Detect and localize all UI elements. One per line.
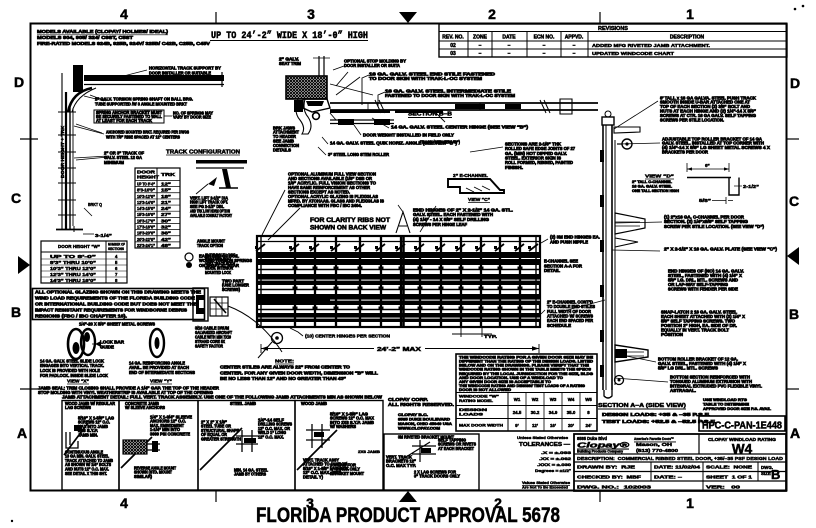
svg-text:SHOWN ON BACK VIEW: SHOWN ON BACK VIEW (310, 224, 387, 231)
svg-text:CHECKED BY: MBF: CHECKED BY: MBF (577, 475, 641, 480)
svg-text:APPROVED DOOR SIZE P.S. AVAIL: APPROVED DOOR SIZE P.S. AVAIL (703, 406, 772, 411)
svg-text:W4: W4 (568, 397, 575, 402)
svg-text:1: 1 (686, 495, 694, 511)
svg-text:15’3-16’0”: 15’3-16’0” (137, 212, 155, 217)
svg-text:LOADS: LOADS (459, 413, 484, 417)
svg-text:12’: 12’ (532, 423, 538, 428)
svg-text:DATE: –: DATE: – (654, 475, 683, 480)
svg-text:2” X 2-1/2” X 16 GA. GALV. PLA: 2” X 2-1/2” X 16 GA. GALV. PLATE (SEE VI… (664, 246, 778, 251)
svg-text:8’3” THRU 10’0”: 8’3” THRU 10’0” (50, 260, 96, 265)
svg-text:UP TO 8’-0”: UP TO 8’-0” (50, 254, 96, 259)
svg-text:AT LEAST FOR EACH TRACK: AT LEAST FOR EACH TRACK (96, 118, 152, 123)
svg-text:DATE: DATE (502, 35, 516, 41)
svg-text:FOR CLARITY RIBS NOT: FOR CLARITY RIBS NOT (310, 217, 390, 224)
svg-text:16’3-17’0”: 16’3-17’0” (137, 218, 155, 223)
svg-text:VIEW “C”: VIEW “C” (468, 197, 490, 202)
svg-text:ALL OPTIONAL GLAZING SHOWN ON: ALL OPTIONAL GLAZING SHOWN ON THIS DRAWI… (35, 290, 201, 295)
svg-text:IMPACT RESISTANT REQUIREMENTS: IMPACT RESISTANT REQUIREMENTS FOR WINDBO… (35, 307, 187, 312)
svg-text:SCREWS PER STILE LOCATION.: SCREWS PER STILE LOCATION. (660, 118, 724, 123)
svg-text:FOR PADLOCK. INSIDE SLIDE LOCK: FOR PADLOCK. INSIDE SLIDE LOCK (40, 373, 108, 378)
svg-text:Unless Stated Otherwise: Unless Stated Otherwise (517, 435, 569, 440)
svg-text:ADDED MFG RIVETED JAMB ATTACHM: ADDED MFG RIVETED JAMB ATTACHMENT. (592, 43, 710, 49)
svg-text:WINDCODE “W”: WINDCODE “W” (459, 395, 499, 399)
svg-text:WWW.CLOPAY.COM: WWW.CLOPAY.COM (398, 425, 440, 430)
svg-text:DESCRIPTION: COMMERCIAL RIBBE: DESCRIPTION: COMMERCIAL RIBBED STEEL DOO… (577, 456, 784, 462)
svg-text:D: D (14, 74, 24, 90)
svg-text:TRACK (SEE VIEW “B”): TRACK (SEE VIEW “B”) (420, 139, 461, 144)
svg-text:10’3” THRU 12’0”: 10’3” THRU 12’0” (50, 266, 96, 271)
svg-text:TUBE SUPPORTED /W 3 ANGLE MOUN: TUBE SUPPORTED /W 3 ANGLE MOUNTED BRKT (95, 101, 187, 106)
svg-text:.XXX = ±.030: .XXX = ±.030 (537, 462, 572, 467)
svg-text:FIRE-RATED MODELS 924B, 925B,: FIRE-RATED MODELS 924B, 925B, 924V/ 325B… (37, 41, 211, 47)
svg-text:12’3” THRU 14’0”: 12’3” THRU 14’0” (50, 272, 96, 277)
svg-text:ON SHAFT AT REAR: ON SHAFT AT REAR (199, 263, 239, 268)
svg-text:SECTION A–A (SIDE VIEW): SECTION A–A (SIDE VIEW) (598, 403, 686, 409)
svg-text:SCALE: NONE: SCALE: NONE (706, 465, 752, 470)
svg-text:MODELS AVAILABLE (CLOPAY/ HOLM: MODELS AVAILABLE (CLOPAY/ HOLMES/ IDEAL) (37, 29, 168, 35)
svg-text:Clopay®: Clopay® (577, 441, 630, 450)
svg-text:JAMB MIN.: JAMB MIN. (78, 433, 98, 438)
svg-text:SECTION B–B: SECTION B–B (408, 112, 452, 118)
svg-text:21”: 21” (161, 200, 171, 205)
svg-text:SCREWS WITH FENDER PER SIDE: SCREWS WITH FENDER PER SIDE (668, 286, 738, 291)
svg-text:Mason, OH: Mason, OH (636, 442, 673, 447)
svg-text:W/ SLEEVE ANCHORS: W/ SLEEVE ANCHORS (125, 405, 165, 410)
svg-text:REGIONS (FBC / IBC CHAPTER 16): REGIONS (FBC / IBC CHAPTER 16). (35, 313, 127, 318)
svg-text:12’3-14’0”: 12’3-14’0” (137, 200, 155, 205)
svg-text:MAX DOOR WIDTH: MAX DOOR WIDTH (459, 424, 503, 428)
svg-text:ECN NO.: ECN NO. (534, 35, 555, 41)
svg-text:BE NO LESS THAN 12” AND NO GRE: BE NO LESS THAN 12” AND NO GREATER THAN … (220, 376, 346, 381)
svg-text:DOOR HEIGHT “W”: DOOR HEIGHT “W” (58, 244, 100, 249)
svg-text:VIEW “Y”: VIEW “Y” (150, 379, 172, 384)
svg-text:–: – (479, 43, 482, 49)
svg-text:DESCRIPTION: DESCRIPTION (670, 35, 705, 41)
svg-text:C: C (789, 193, 799, 209)
svg-text:MINIMUM: MINIMUM (104, 160, 125, 165)
svg-text:35.0: 35.0 (567, 410, 576, 415)
svg-text:A: A (17, 425, 27, 441)
svg-text:20’: 20’ (568, 423, 574, 428)
svg-text:SEAT TRIM: SEAT TRIM (279, 61, 301, 66)
svg-text:1/4”-20 X 5/8” SHEET METAL SCR: 1/4”-20 X 5/8” SHEET METAL SCREWS (79, 322, 155, 327)
svg-text:OR INTERNATIONAL BUILDING CODE: OR INTERNATIONAL BUILDING CODE BUT DOES … (35, 302, 197, 307)
svg-text:36”: 36” (161, 231, 171, 236)
svg-text:.X = ±.093: .X = ±.093 (541, 450, 572, 455)
svg-text:FASTENED TO DOOR SKIN WITH TRA: FASTENED TO DOOR SKIN WITH TRAK-L-OC SYS… (385, 93, 516, 98)
svg-text:REV. NO.: REV. NO. (442, 35, 464, 41)
svg-text:14’3” THRU 16’0”: 14’3” THRU 16’0” (50, 278, 96, 283)
svg-text:O.C. MAX TYP.: O.C. MAX TYP. (386, 463, 416, 468)
svg-text:BRACKETS PER DOOR: BRACKETS PER DOOR (662, 150, 708, 155)
svg-text:VIEW “X”: VIEW “X” (67, 379, 89, 384)
svg-text:.XX = ±.062: .XX = ±.062 (539, 456, 572, 461)
svg-text:AND PUSH NIPPLE: AND PUSH NIPPLE (550, 239, 588, 244)
svg-text:24’-2” MAX: 24’-2” MAX (377, 347, 422, 353)
svg-text:1: 1 (686, 6, 694, 22)
svg-text:–: – (573, 43, 576, 49)
svg-text:32”: 32” (161, 225, 171, 230)
svg-text:3: 3 (307, 6, 315, 22)
svg-text:VER: 00: VER: 00 (706, 485, 741, 490)
svg-text:ASTRAGAL.: ASTRAGAL. (670, 388, 696, 393)
svg-text:HEIGHT: HEIGHT (137, 175, 160, 180)
svg-text:WIND LOAD REQUIREMENTS OF THE: WIND LOAD REQUIREMENTS OF THE FLORIDA BU… (35, 296, 195, 301)
svg-text:C: C (11, 190, 21, 206)
svg-text:–: – (543, 43, 546, 49)
svg-text:SECTIONS: SECTIONS (108, 246, 124, 251)
svg-text:ONE TALL SECTION HIGH: ONE TALL SECTION HIGH (632, 188, 679, 193)
svg-text:17’3-18’0”: 17’3-18’0” (137, 225, 155, 230)
svg-text:TYP.: TYP. (484, 334, 497, 339)
svg-text:24’: 24’ (585, 423, 591, 428)
svg-text:Building Products Company: Building Products Company (577, 450, 624, 454)
svg-text:BRACKET MOUNT: BRACKET MOUNT (330, 471, 364, 476)
svg-text:12” O.C. MAX.: 12” O.C. MAX. (258, 435, 284, 440)
svg-text:SEE DETAIL X THIS SHT.: SEE DETAIL X THIS SHT. (65, 471, 107, 476)
svg-text:10’3-12’0”: 10’3-12’0” (137, 194, 155, 199)
svg-text:DOOR HEIGHT + TRK: DOOR HEIGHT + TRK (60, 125, 65, 178)
svg-text:3” STEEL LONG STEM ROLLER: 3” STEEL LONG STEM ROLLER (328, 152, 389, 157)
svg-text:3” TRACK DOORS ONLY: 3” TRACK DOORS ONLY (414, 474, 460, 479)
svg-text:AT EACH BRACKET: AT EACH BRACKET (438, 446, 474, 451)
svg-text:DETAIL: DETAIL (544, 268, 560, 273)
svg-text:2: 2 (488, 6, 496, 22)
svg-text:FINISH.: FINISH. (505, 165, 523, 170)
svg-text:CLOPAY CORP.: CLOPAY CORP. (388, 397, 428, 403)
svg-text:DATE: 11/02/04: DATE: 11/02/04 (654, 465, 701, 470)
svg-text:TRACK OPTION: TRACK OPTION (197, 243, 223, 248)
svg-text:GREATER STRENGTH: GREATER STRENGTH (201, 437, 241, 442)
svg-text:W2: W2 (532, 397, 539, 402)
svg-text:DOOR INSTALLER OR SUITA: DOOR INSTALLER OR SUITA (344, 63, 400, 68)
svg-text:27”: 27” (161, 212, 171, 217)
svg-text:22’3-24’1”: 22’3-24’1” (137, 243, 155, 248)
svg-text:SCREWS): SCREWS) (222, 287, 241, 292)
svg-text:(10) CENTER HINGES PER SECTION: (10) CENTER HINGES PER SECTION (305, 334, 391, 339)
svg-text:MODELS 904, 905/ 324/ C9ST, C5: MODELS 904, 905/ 324/ C9ST, C5ST (37, 35, 133, 41)
svg-text:DWG. NO.: 102003: DWG. NO.: 102003 (577, 485, 652, 490)
svg-text:(513) 770-4800: (513) 770-4800 (636, 448, 679, 453)
svg-text:W4: W4 (732, 442, 753, 457)
svg-text:3-1/4”: 3-1/4” (95, 233, 112, 238)
svg-text:48”: 48” (161, 243, 171, 248)
svg-text:VARY BY DOOR SIZE: VARY BY DOOR SIZE (173, 115, 211, 120)
svg-text:DOOR INSTALLER OR SUITABLE: DOOR INSTALLER OR SUITABLE (149, 70, 211, 75)
svg-text:–: – (479, 51, 482, 57)
svg-text:D: D (790, 75, 800, 91)
svg-text:SCHEDULE: SCHEDULE (547, 323, 571, 328)
svg-text:AVAILABLE CONSULT FACTORY: AVAILABLE CONSULT FACTORY (190, 213, 232, 218)
svg-text:HPC-C-PAN-1E448: HPC-C-PAN-1E448 (702, 421, 782, 432)
svg-text:ZONE: ZONE (473, 35, 488, 41)
svg-text:5/8” LG DRL. MTL. SCREWS: 5/8” LG DRL. MTL. SCREWS (658, 365, 718, 370)
svg-text:2” E-CHANNEL: 2” E-CHANNEL (453, 173, 488, 178)
svg-text:DETAILS: DETAILS (273, 147, 291, 152)
svg-text:DESIGN: DESIGN (459, 408, 487, 412)
svg-text:18’3-20’0”: 18’3-20’0” (137, 231, 155, 236)
svg-text:DESIGN LOADS: +35 & –35 P.S.F.: DESIGN LOADS: +35 & –35 P.S.F. (602, 412, 710, 418)
svg-text:12”: 12” (161, 182, 171, 187)
svg-text:DOOR WEIGHT INSTALLED IN FIELD: DOOR WEIGHT INSTALLED IN FIELD ONLY (363, 132, 454, 137)
svg-text:W/ WASHERS: W/ WASHERS (330, 424, 356, 429)
svg-text:UPDATED WINDCODE CHART: UPDATED WINDCODE CHART (592, 51, 674, 57)
svg-text:STEEL JAMB: STEEL JAMB (230, 401, 256, 406)
svg-text:SAFETY FACTOR: SAFETY FACTOR (195, 344, 223, 349)
svg-text:W1: W1 (514, 397, 521, 402)
svg-text:15”: 15” (161, 188, 171, 193)
svg-text:DRAWN BY: RJE: DRAWN BY: RJE (577, 465, 635, 470)
svg-text:SCREW PER STILE LOCATION. (SEE: SCREW PER STILE LOCATION. (SEE VIEW “D”) (664, 224, 765, 229)
svg-text:24”: 24” (161, 206, 171, 211)
svg-text:18”: 18” (161, 194, 171, 199)
svg-text:02: 02 (450, 43, 456, 49)
svg-text:SIZE: SIZE (761, 471, 771, 476)
svg-text:4: 4 (120, 6, 128, 22)
svg-text:WITH 7/8” RISE SPACED AT 12” C: WITH 7/8” RISE SPACED AT 12” CENTERS (106, 134, 180, 139)
svg-text:–: – (543, 51, 546, 57)
svg-text:W5: W5 (585, 397, 592, 402)
svg-text:20’3-22’0”: 20’3-22’0” (137, 237, 155, 242)
svg-text:MOUNTED LOCK: MOUNTED LOCK (205, 270, 231, 275)
svg-text:2-1/2”: 2-1/2” (743, 184, 760, 190)
svg-text:B: B (789, 306, 799, 322)
svg-text:SCREWS PER HINGE LEAF: SCREWS PER HINGE LEAF (413, 222, 467, 227)
svg-text:A: A (790, 425, 800, 441)
svg-text:LAG SCREWS: LAG SCREWS (65, 405, 91, 410)
svg-text:–: – (508, 43, 511, 49)
svg-text:JAMB BY OTHERS: JAMB BY OTHERS (234, 472, 266, 477)
svg-text:8’3-10’0”: 8’3-10’0” (137, 188, 155, 193)
svg-text:COMPLIANCE WITH FBC / IBC 2404: COMPLIANCE WITH FBC / IBC 2404. (288, 203, 362, 208)
svg-text:–: – (573, 51, 576, 57)
svg-text:CENTER STILES ARE ALWAYS 22” F: CENTER STILES ARE ALWAYS 22” FROM CENTER… (220, 365, 351, 370)
svg-text:14 GA. GALV. STEEL CENTER HING: 14 GA. GALV. STEEL CENTER HINGE (SEE VIE… (391, 124, 529, 129)
svg-text:24.5: 24.5 (513, 410, 522, 415)
svg-text:UP TO 8’-0”: UP TO 8’-0” (137, 182, 155, 187)
svg-text:America’s Favorite Doors™: America’s Favorite Doors™ (634, 437, 674, 441)
svg-text:6”: 6” (705, 163, 710, 168)
svg-text:ALL RIGHTS RESERVED.: ALL RIGHTS RESERVED. (388, 402, 454, 408)
svg-text:SHEET 1 OF 1: SHEET 1 OF 1 (706, 475, 753, 480)
svg-text:TOLERANCES —: TOLERANCES — (519, 442, 571, 448)
svg-text:4: 4 (120, 495, 128, 511)
svg-text:END OF INTERMEDIATE SECTIONS: END OF INTERMEDIATE SECTIONS (129, 370, 195, 375)
svg-text:42”: 42” (161, 237, 171, 242)
svg-text:2X6 JAMB: 2X6 JAMB (358, 450, 380, 454)
svg-text:TRK: TRK (161, 172, 175, 177)
svg-text:RATING MODEL: RATING MODEL (459, 399, 494, 403)
svg-text:DETAIL Y): DETAIL Y) (303, 475, 324, 480)
svg-text:POSITION: POSITION (661, 332, 683, 337)
svg-text:B: B (771, 467, 780, 482)
svg-text:BRKT Q: BRKT Q (88, 202, 102, 207)
svg-text:30.2: 30.2 (531, 410, 540, 415)
svg-text:9’: 9’ (515, 423, 519, 428)
svg-text:14’3-15’0”: 14’3-15’0” (137, 206, 155, 211)
svg-text:CENTER. FOR ANY GIVEN DOOR WID: CENTER. FOR ANY GIVEN DOOR WIDTH, DIMENS… (220, 370, 378, 375)
svg-text:5/8”: 5/8” (699, 198, 711, 203)
svg-text:30”: 30” (161, 218, 171, 223)
svg-text:TO DOOR SKIN WITH TRAK-L-OC SY: TO DOOR SKIN WITH TRAK-L-OC SYSTEM (369, 76, 483, 81)
svg-text:REVISIONS: REVISIONS (598, 26, 628, 32)
svg-text:Degrees = ±1/2°: Degrees = ±1/2° (535, 468, 571, 473)
svg-text:16’: 16’ (550, 423, 556, 428)
svg-text:FLORIDA PRODUCT APPROVAL 5678: FLORIDA PRODUCT APPROVAL 5678 (256, 504, 560, 527)
svg-text:WOOD JAMB: WOOD JAMB (301, 401, 327, 406)
svg-text:GUIDE: GUIDE (100, 345, 114, 350)
svg-text:JAMB ATTACHMENT DETAIL: FULL V: JAMB ATTACHMENT DETAIL: FULL VERT. TRACK… (62, 394, 382, 399)
svg-text:DOOR IS NOT ALLOWED: DOOR IS NOT ALLOWED (459, 388, 511, 392)
svg-text:APPVD.: APPVD. (565, 35, 584, 41)
svg-text:03: 03 (450, 51, 456, 57)
svg-text:34.9: 34.9 (549, 410, 558, 415)
svg-text:–: – (508, 51, 511, 57)
svg-text:3000 PSI CONCRETE: 3000 PSI CONCRETE (150, 432, 190, 437)
svg-text:B: B (11, 304, 21, 320)
svg-text:SIMILAR): SIMILAR) (134, 474, 153, 479)
svg-text:W3: W3 (550, 397, 557, 402)
